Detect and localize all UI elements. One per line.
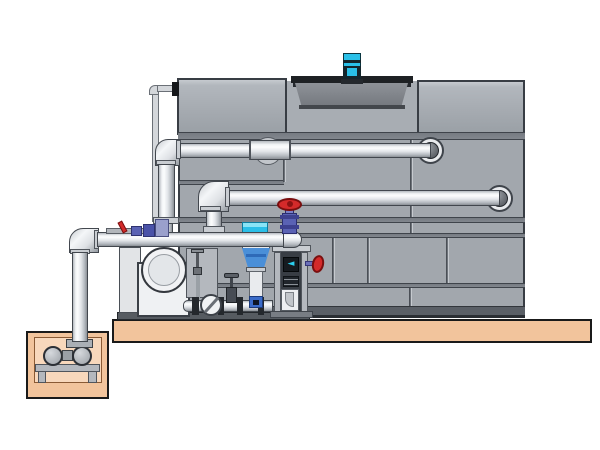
fan-cowl — [295, 83, 408, 107]
fan-motor-band — [343, 60, 361, 63]
column-base — [270, 311, 313, 318]
separator-drop-pipe — [249, 271, 263, 299]
sump-pump-motor — [43, 346, 63, 366]
tower-top-left-casing — [177, 78, 287, 135]
stand-leg-left — [38, 371, 46, 383]
chem-fitting — [131, 226, 142, 236]
panel-seam — [446, 238, 449, 283]
fan-motor-base — [341, 79, 363, 84]
fan-motor-window — [347, 68, 357, 76]
chem-union-block — [155, 219, 169, 237]
panel-seam — [410, 223, 413, 233]
tap-valve-body — [193, 267, 202, 275]
stand-leg-right — [88, 371, 97, 383]
tower-seam-2 — [178, 217, 525, 223]
tower-seam-left-sub — [179, 180, 284, 185]
header-valve-flange — [280, 225, 299, 229]
gate-valve-stem — [230, 278, 233, 287]
upper-pipe-sleeve — [249, 140, 291, 160]
tap-valve-stem — [196, 253, 199, 268]
tower-top-right-casing — [417, 80, 525, 135]
manifold-flange — [192, 297, 199, 315]
sump-riser-pipe — [72, 252, 88, 342]
separator-cone-stripe — [246, 254, 266, 257]
tower-seam-top — [178, 132, 525, 140]
column-display: ◄ — [283, 257, 299, 272]
column-label-plate — [283, 276, 299, 287]
separator-foot-port — [253, 300, 259, 305]
lower-return-pipe — [229, 190, 500, 206]
pump-volute-inner — [148, 254, 180, 286]
header-valve-hub — [287, 201, 293, 207]
panel-seam — [409, 288, 412, 306]
separator-logo-icon: ◄ — [288, 259, 295, 269]
column-post-left — [274, 252, 281, 312]
panel-seam — [367, 238, 370, 283]
concrete-slab — [112, 319, 592, 343]
gauge-panel — [186, 248, 218, 298]
manifold-flange — [237, 297, 243, 315]
upper-pipe-riser — [158, 164, 175, 219]
makeup-line-flange — [172, 82, 179, 96]
fan-cowl-lip — [299, 105, 405, 109]
panel-seam — [332, 238, 335, 283]
chem-fitting — [143, 224, 155, 237]
upper-supply-pipe — [180, 143, 431, 158]
suction-header-pipe — [97, 232, 289, 247]
gate-valve-body — [226, 287, 237, 303]
header-valve-flange — [280, 215, 299, 219]
separator-head-top — [243, 223, 267, 227]
sump-pump-volute — [72, 346, 92, 366]
cooling-tower-diagram: ◄ — [0, 0, 600, 450]
